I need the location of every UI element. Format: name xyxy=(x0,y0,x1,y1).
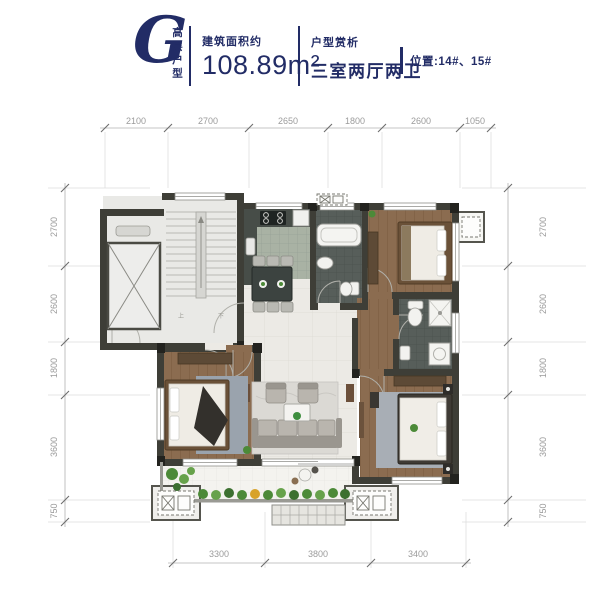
shower xyxy=(429,300,451,326)
bathroom1-toilet xyxy=(340,282,359,296)
dim-label: 2700 xyxy=(538,217,548,237)
sofa xyxy=(252,418,342,448)
dim-label: 2600 xyxy=(49,294,59,314)
dim-label: 1050 xyxy=(465,116,485,126)
dim-label: 2700 xyxy=(198,116,218,126)
bedroom2-wardrobe xyxy=(368,232,378,284)
stairs-down-label: 下 xyxy=(218,313,224,320)
master-bed xyxy=(398,394,452,464)
dim-label: 3800 xyxy=(308,549,328,559)
ac-marker-top xyxy=(317,194,347,205)
bedroom2-plant xyxy=(369,211,376,218)
bedroom1-plant xyxy=(243,446,251,454)
dining-area xyxy=(252,256,293,312)
dim-label: 1800 xyxy=(538,358,548,378)
kitchen-sink xyxy=(246,238,255,255)
master-dresser xyxy=(394,376,446,386)
dim-label: 2700 xyxy=(49,217,59,237)
bathroom2-toilet xyxy=(408,301,423,326)
elevator-indicator xyxy=(116,226,150,236)
washing-machine xyxy=(429,343,450,365)
dim-label: 1800 xyxy=(49,358,59,378)
bathroom2-sink xyxy=(400,346,410,360)
dining-table xyxy=(252,267,292,301)
bedroom1-bed xyxy=(165,380,229,450)
dim-label: 3300 xyxy=(209,549,229,559)
dim-label: 2100 xyxy=(126,116,146,126)
bathroom1-sink xyxy=(317,257,333,269)
bathtub xyxy=(317,224,361,246)
master-chair xyxy=(370,392,379,408)
stairs-up-label: 上 xyxy=(178,312,184,320)
bedroom2-bed xyxy=(398,222,452,284)
dim-label: 1800 xyxy=(345,116,365,126)
ac-marker-top-right xyxy=(462,217,480,237)
dim-label: 2600 xyxy=(411,116,431,126)
dim-label: 3600 xyxy=(49,437,59,457)
dim-label: 750 xyxy=(49,503,59,518)
dim-label: 750 xyxy=(538,503,548,518)
bedroom1-dresser xyxy=(178,353,232,364)
master-tv-cabinet xyxy=(359,402,364,438)
dim-label: 2600 xyxy=(538,294,548,314)
refrigerator xyxy=(293,210,309,226)
dim-label: 3600 xyxy=(538,437,548,457)
floor-plant-right xyxy=(346,384,354,402)
dim-label: 3400 xyxy=(408,549,428,559)
ac-marker-left xyxy=(158,491,194,515)
floor-plan: 2100 2700 2650 1800 2600 1050 2700 2600 … xyxy=(0,0,600,602)
ac-marker-right xyxy=(353,491,391,515)
living-room xyxy=(242,382,354,454)
grille xyxy=(272,505,345,525)
coffee-table xyxy=(284,404,310,421)
dim-label: 2650 xyxy=(278,116,298,126)
